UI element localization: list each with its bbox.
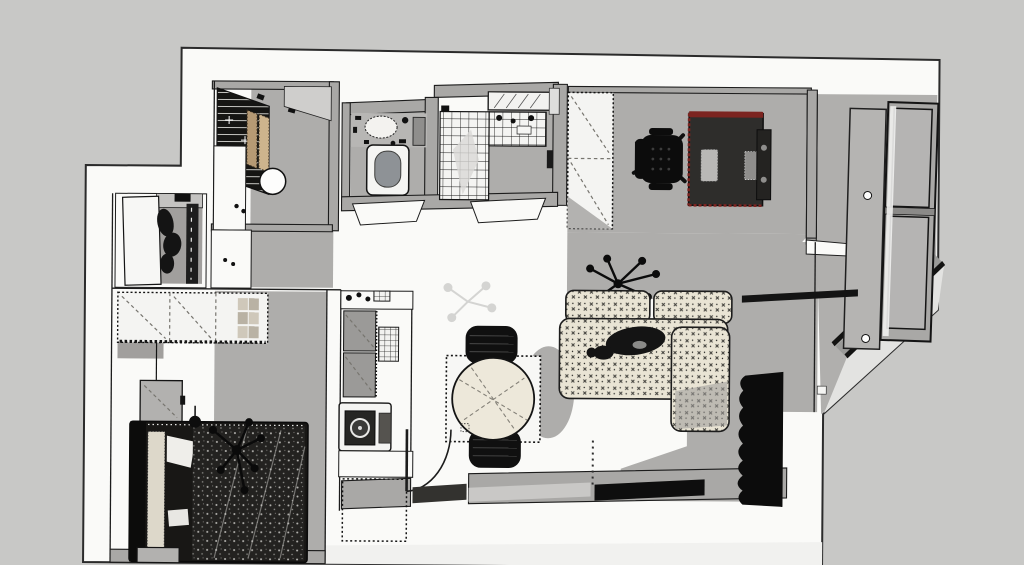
utility-lower-counter bbox=[339, 451, 413, 478]
shower-door-threshold bbox=[470, 198, 545, 224]
entry-closet bbox=[115, 193, 207, 288]
toilet-bowl bbox=[375, 151, 401, 187]
corridor-shadow bbox=[243, 230, 333, 288]
tv-unit bbox=[737, 372, 783, 507]
shelf-item bbox=[761, 177, 767, 183]
counter-knob bbox=[234, 204, 238, 208]
chair-armrest bbox=[649, 183, 673, 190]
pillow-strip bbox=[147, 431, 165, 553]
sill-end-cap bbox=[817, 386, 826, 394]
entry-south-wall bbox=[341, 478, 410, 509]
machine-panel bbox=[379, 413, 391, 443]
floor-plan-svg bbox=[0, 0, 1024, 565]
shelf bbox=[549, 88, 559, 114]
drain-item bbox=[441, 106, 449, 112]
closet-open-door bbox=[123, 196, 161, 285]
desk-red-edge bbox=[689, 205, 763, 206]
floor-plan-stage bbox=[0, 0, 1024, 565]
duvet bbox=[192, 426, 305, 561]
closet-box bbox=[175, 194, 191, 202]
nightstand bbox=[140, 380, 185, 422]
vanity-tray bbox=[488, 92, 550, 110]
washing-machine bbox=[339, 403, 391, 451]
door-knob-lower bbox=[862, 334, 870, 342]
chair-armrest bbox=[649, 128, 673, 135]
vanity-decor bbox=[365, 116, 397, 138]
headboard bbox=[129, 421, 146, 561]
bed-pendant-lamp bbox=[189, 416, 201, 428]
window-pane bbox=[887, 216, 929, 329]
window-pane bbox=[891, 108, 932, 207]
round-basin bbox=[260, 168, 286, 194]
study-east-wall bbox=[806, 90, 817, 238]
towel-bar bbox=[547, 150, 553, 168]
keyboard bbox=[701, 149, 718, 181]
cistern bbox=[413, 117, 425, 145]
window-stack bbox=[881, 102, 939, 342]
cutting-board bbox=[259, 114, 269, 172]
closet-side-panel bbox=[186, 204, 199, 284]
cutting-board bbox=[247, 110, 257, 168]
kitchen-lower-cabinet bbox=[211, 230, 251, 288]
backsplash-tiles bbox=[378, 327, 398, 361]
soap-dish bbox=[517, 126, 531, 134]
sheet-fold-2 bbox=[168, 509, 189, 527]
sofa-dot bbox=[586, 348, 596, 358]
desk-side-shelf bbox=[757, 130, 771, 200]
toilet-west-wall bbox=[342, 103, 351, 206]
kitchen-counter bbox=[213, 146, 246, 230]
counter-knob bbox=[241, 209, 245, 213]
double-bed bbox=[129, 405, 308, 562]
cabinet-knob bbox=[231, 262, 235, 266]
bedroom-wardrobe bbox=[118, 292, 268, 343]
desk-red-trim bbox=[689, 111, 763, 118]
balcony-door bbox=[844, 108, 887, 349]
cabinet-knob bbox=[223, 258, 227, 262]
nightstand-south bbox=[137, 547, 179, 562]
desk-item bbox=[745, 152, 757, 180]
shelf-item bbox=[761, 145, 767, 151]
toilet-door-threshold bbox=[352, 200, 424, 226]
door-knob bbox=[864, 191, 872, 199]
desk bbox=[689, 111, 772, 206]
counter-tiles bbox=[374, 291, 390, 301]
